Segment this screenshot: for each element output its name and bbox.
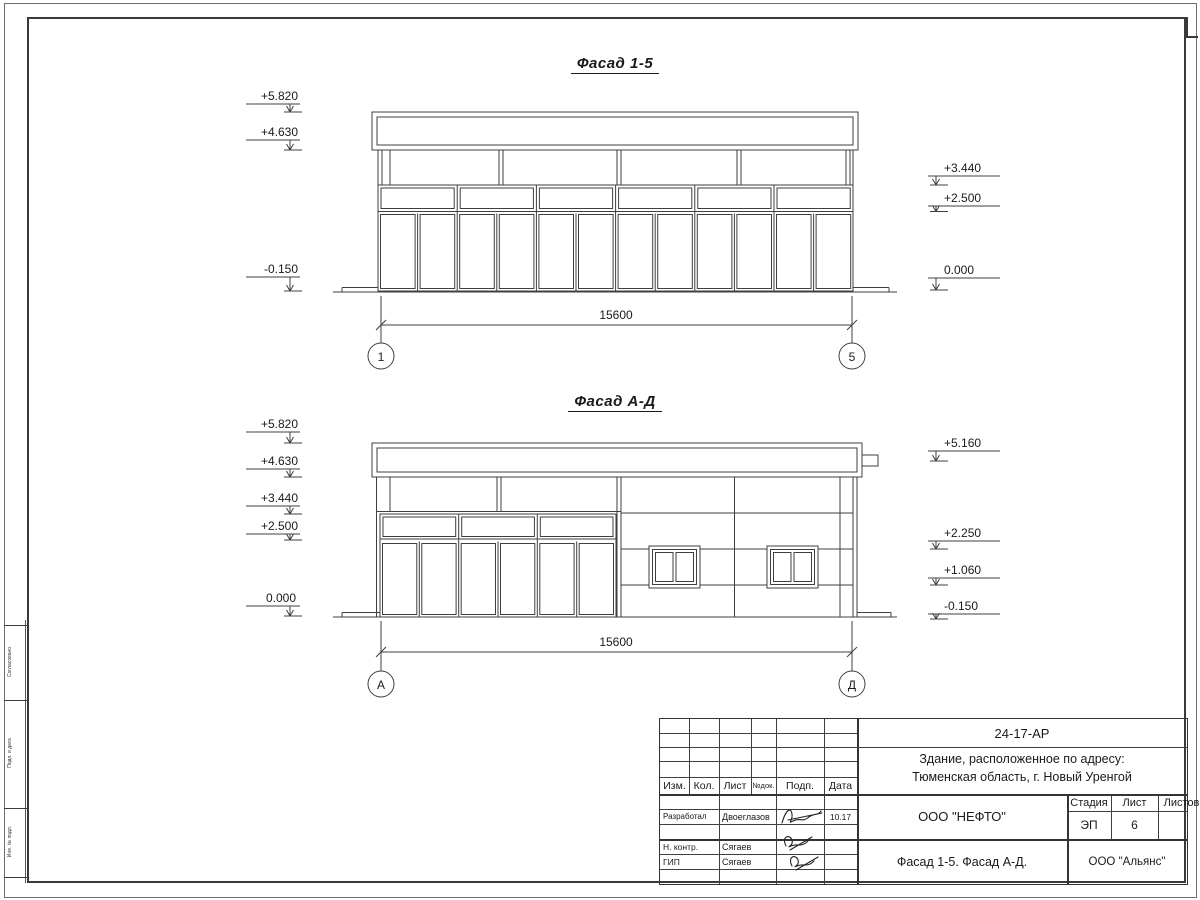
facade-1-5-elevations-right: +3.440 +2.500 0.000 <box>928 161 1000 290</box>
axis-label-a: А <box>377 678 385 692</box>
elevation-value: +4.630 <box>261 125 298 139</box>
signature-razrabotal <box>778 801 824 829</box>
col-list: Лист <box>719 777 751 794</box>
elevation-value: +2.250 <box>944 526 981 540</box>
doc-number: 24-17-АР <box>857 719 1187 747</box>
facade-1-5-drawing <box>333 112 897 292</box>
designer-company: ООО "НЕФТО" <box>857 794 1067 839</box>
col-podp: Подп. <box>776 777 824 794</box>
object-line1: Здание, расположенное по адресу: <box>857 752 1187 766</box>
elevation-value: +3.440 <box>261 491 298 505</box>
elevation-value: +5.160 <box>944 436 981 450</box>
sheet-number: 6 <box>1111 811 1158 839</box>
row-name: Сягаев <box>722 854 776 869</box>
axis-label-d: Д <box>848 678 856 692</box>
row-role: ГИП <box>663 854 718 869</box>
facade-1-5-elevations-left: +5.820 +4.630 -0.150 <box>246 89 302 291</box>
sheet-title: Фасад 1-5. Фасад А-Д. <box>857 839 1067 884</box>
facade-a-d-elevations-right: +5.160 +2.250 +1.060 -0.150 <box>928 436 1000 619</box>
object-description: Здание, расположенное по адресу: Тюменск… <box>857 749 1187 794</box>
axis-label-1: 1 <box>378 350 385 364</box>
axis-label-5: 5 <box>849 350 856 364</box>
facade-a-d-elevations-left: +5.820 +4.630 +3.440 +2.500 0.000 <box>246 417 302 616</box>
signature-nkontr-gip <box>778 832 824 874</box>
sheets-total <box>1158 811 1187 839</box>
elevation-value: +4.630 <box>261 454 298 468</box>
facade-a-d-dimension: 15600 А Д <box>368 621 865 697</box>
stage-value: ЭП <box>1067 811 1111 839</box>
elevation-value: -0.150 <box>264 262 298 276</box>
col-ndok: №док. <box>751 777 776 794</box>
dimension-text: 15600 <box>599 635 633 649</box>
col-kol: Кол. <box>689 777 719 794</box>
col-izm: Изм. <box>660 777 689 794</box>
row-role: Н. контр. <box>663 839 718 854</box>
elevation-value: +1.060 <box>944 563 981 577</box>
col-data: Дата <box>824 777 857 794</box>
sheet-label: Лист <box>1111 794 1158 811</box>
elevation-value: -0.150 <box>944 599 978 613</box>
row-name: Двоеглазов <box>722 809 776 824</box>
title-block: Изм. Кол. Лист №док. Подп. Дата Разработ… <box>659 718 1188 885</box>
row-name: Сягаев <box>722 839 776 854</box>
facade-1-5-dimension: 15600 1 5 <box>368 296 865 369</box>
row-role: Разработал <box>663 809 718 824</box>
elevation-value: +5.820 <box>261 417 298 431</box>
object-line2: Тюменская область, г. Новый Уренгой <box>857 770 1187 784</box>
drawing-sheet: Согласовано Подп. и дата Инв. № подл. Фа… <box>0 0 1200 900</box>
stage-label: Стадия <box>1067 794 1111 811</box>
elevation-value: +5.820 <box>261 89 298 103</box>
row-date: 10.17 <box>824 809 857 824</box>
elevation-value: 0.000 <box>266 591 296 605</box>
contractor-company: ООО "Альянс" <box>1067 839 1187 884</box>
elevation-value: +2.500 <box>944 191 981 205</box>
sheets-label: Листов <box>1158 794 1200 811</box>
facade-a-d-drawing <box>333 443 897 617</box>
dimension-text: 15600 <box>599 308 633 322</box>
elevation-value: +2.500 <box>261 519 298 533</box>
elevation-value: +3.440 <box>944 161 981 175</box>
elevation-value: 0.000 <box>944 263 974 277</box>
